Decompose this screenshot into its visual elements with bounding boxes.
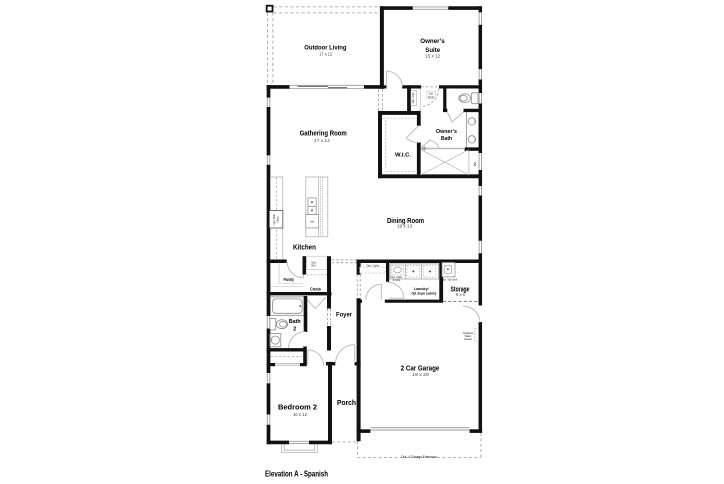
svg-text:Opt. Tub Sink: Opt. Tub Sink bbox=[442, 277, 458, 281]
svg-text:Opt. Cab: Opt. Cab bbox=[411, 92, 415, 103]
svg-text:Coats: Coats bbox=[310, 287, 321, 292]
svg-text:Owner’s: Owner’s bbox=[420, 38, 445, 45]
svg-text:& Sink: & Sink bbox=[393, 278, 401, 282]
svg-text:Porch: Porch bbox=[337, 398, 356, 407]
svg-text:Opt.: Opt. bbox=[311, 260, 316, 264]
svg-text:W.I.C.: W.I.C. bbox=[395, 153, 411, 159]
svg-text:17 x 14: 17 x 14 bbox=[314, 138, 330, 143]
svg-text:2: 2 bbox=[293, 326, 296, 332]
svg-text:Door: Door bbox=[428, 95, 434, 99]
svg-text:Heater: Heater bbox=[464, 337, 472, 341]
svg-text:Opt. Cabs: Opt. Cabs bbox=[367, 263, 380, 267]
svg-text:Bath: Bath bbox=[289, 319, 302, 325]
svg-text:Opt. 4’ Garage Extension: Opt. 4’ Garage Extension bbox=[401, 455, 437, 459]
svg-text:Kitchen: Kitchen bbox=[293, 245, 316, 252]
svg-text:Laundry/: Laundry/ bbox=[414, 287, 428, 291]
svg-text:Bath: Bath bbox=[441, 136, 453, 142]
svg-text:15 x 12: 15 x 12 bbox=[425, 54, 441, 59]
svg-text:Bedroom 2: Bedroom 2 bbox=[278, 403, 317, 412]
svg-text:Ref.: Ref. bbox=[311, 264, 316, 268]
svg-text:Gathering Room: Gathering Room bbox=[300, 129, 347, 138]
svg-text:Elevation A - Spanish: Elevation A - Spanish bbox=[265, 470, 328, 479]
svg-text:6 x 6: 6 x 6 bbox=[456, 292, 466, 297]
svg-text:Opt. Super Laundry: Opt. Super Laundry bbox=[412, 291, 437, 295]
svg-text:Foyer: Foyer bbox=[336, 312, 352, 319]
svg-text:Oven: Oven bbox=[276, 216, 279, 223]
svg-text:Pantry: Pantry bbox=[284, 277, 295, 282]
svg-text:17 x 12: 17 x 12 bbox=[319, 51, 333, 56]
svg-text:Owner’s: Owner’s bbox=[436, 129, 457, 135]
svg-text:19 x 13: 19 x 13 bbox=[397, 224, 413, 229]
svg-text:10 x 12: 10 x 12 bbox=[293, 412, 308, 417]
svg-text:19 x 20: 19 x 20 bbox=[412, 372, 429, 377]
